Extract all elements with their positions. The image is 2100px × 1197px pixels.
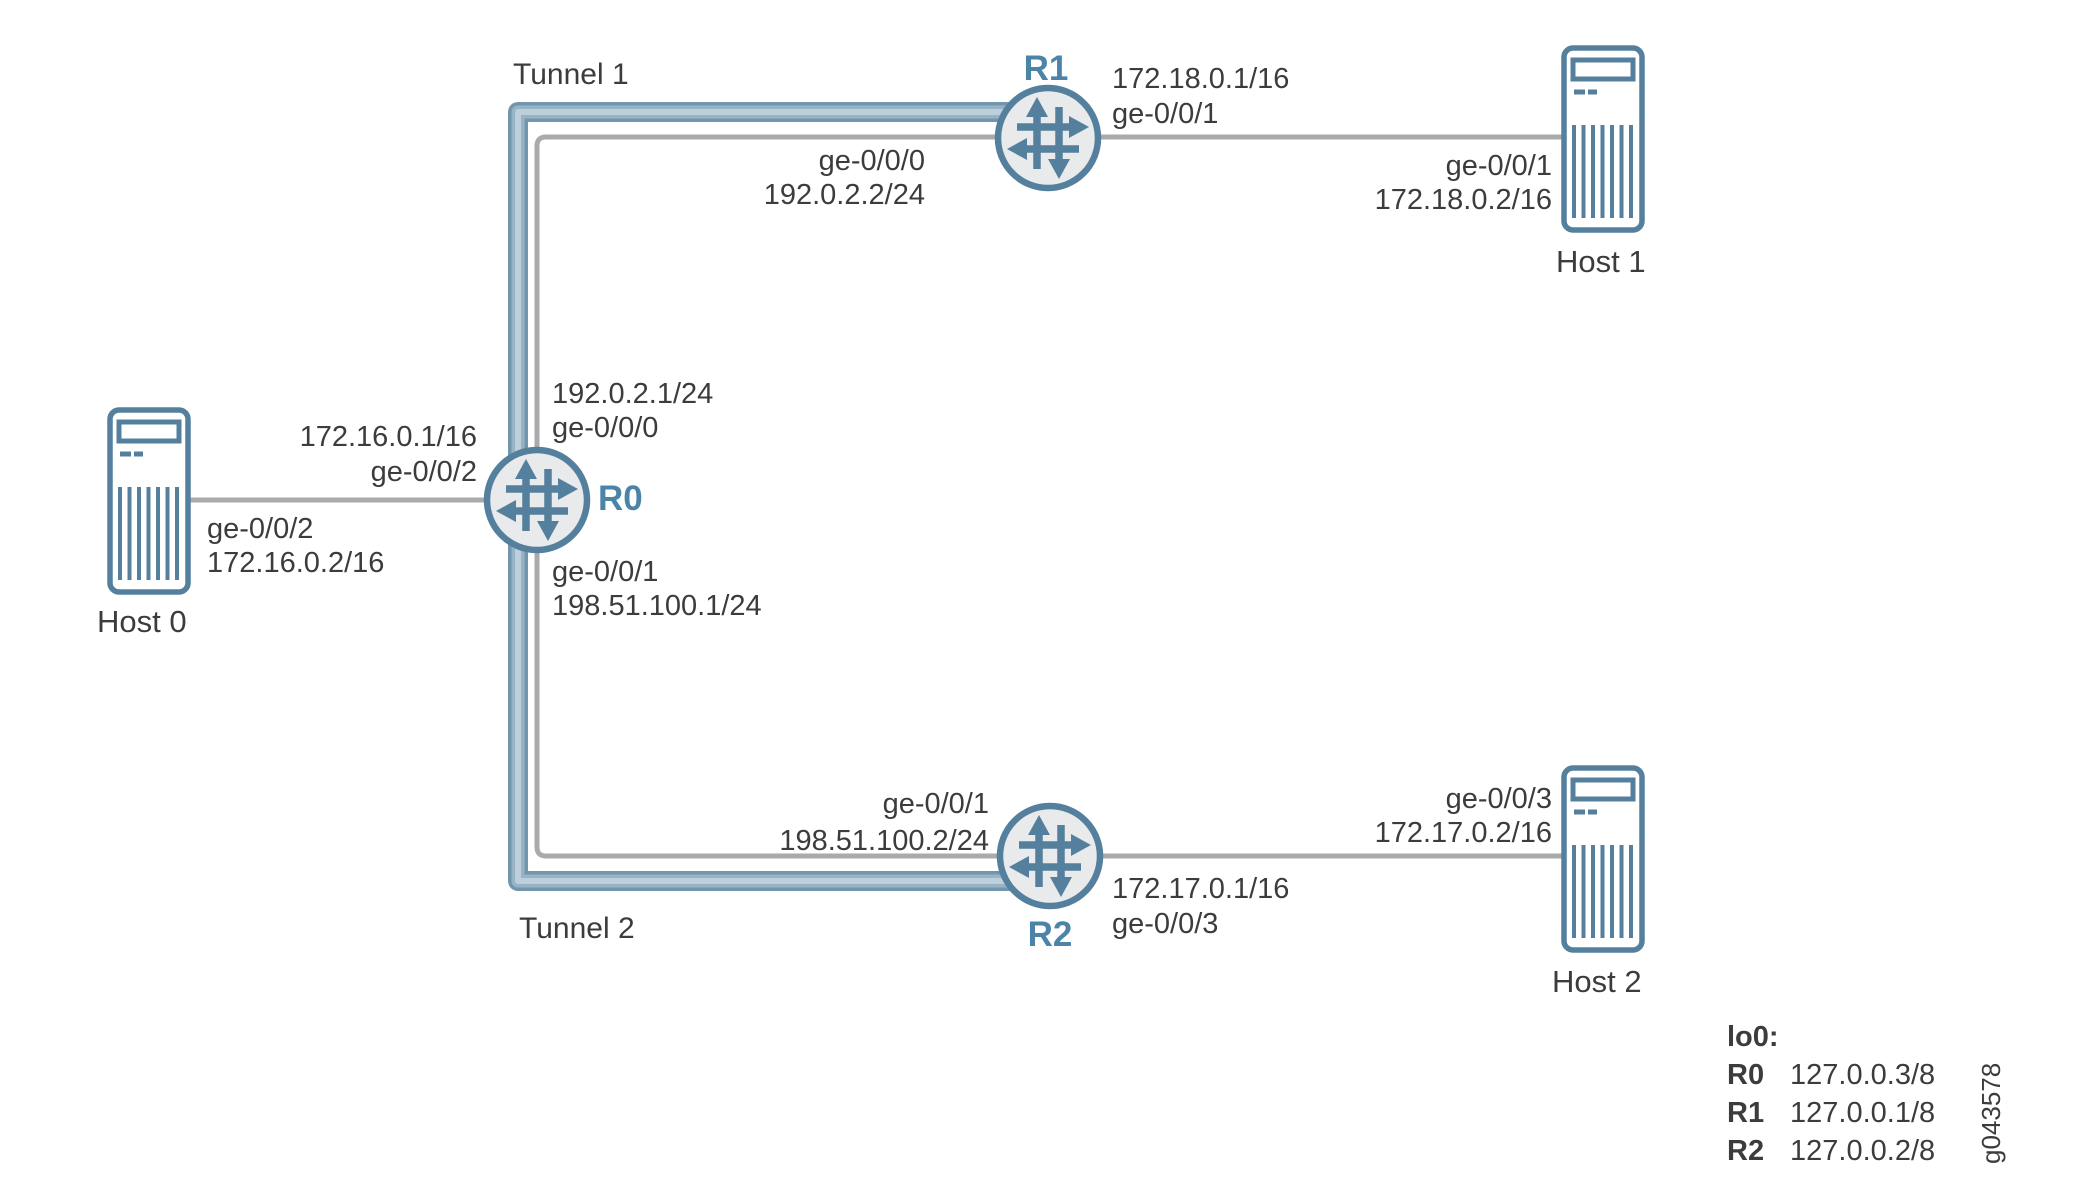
r1-left-ip: 192.0.2.2/24: [764, 179, 925, 211]
host2-if: ge-0/0/3: [1446, 783, 1552, 815]
host0-name: Host 0: [97, 604, 187, 639]
r0-left-ip: 172.16.0.1/16: [300, 421, 477, 453]
r0-top-ip: 192.0.2.1/24: [552, 378, 713, 410]
router-icon-r0: [487, 450, 587, 550]
host-icon-host2: [1564, 768, 1642, 950]
loopback-legend: lo0: R0 127.0.0.3/8 R1 127.0.0.1/8 R2 12…: [1727, 1021, 1935, 1167]
legend-row-value: 127.0.0.3/8: [1790, 1059, 1935, 1091]
legend-row-label: R2: [1727, 1135, 1764, 1167]
tunnel-2-label: Tunnel 2: [519, 912, 635, 945]
r1-right-ip: 172.18.0.1/16: [1112, 63, 1289, 95]
r2-right-ip: 172.17.0.1/16: [1112, 873, 1289, 905]
link-r0-r2-host2: [537, 500, 1566, 856]
legend-title: lo0:: [1727, 1021, 1779, 1053]
host1-if: ge-0/0/1: [1446, 150, 1552, 182]
r2-right-if: ge-0/0/3: [1112, 908, 1218, 940]
host2-name: Host 2: [1552, 964, 1642, 999]
host0-ip: 172.16.0.2/16: [207, 547, 384, 579]
legend-row-value: 127.0.0.1/8: [1790, 1097, 1935, 1129]
host-icon-host1: [1564, 48, 1642, 230]
router-icon-r1: [998, 88, 1098, 188]
figure-id: g043578: [1976, 1063, 2006, 1164]
r0-bottom-ip: 198.51.100.1/24: [552, 590, 762, 622]
r0-bottom-if: ge-0/0/1: [552, 556, 658, 588]
r1-right-if: ge-0/0/1: [1112, 98, 1218, 130]
topology-canvas: Tunnel 1 Tunnel 2 R1 172.18.0.1/16 ge-0/…: [0, 0, 2100, 1197]
r1-left-if: ge-0/0/0: [819, 145, 925, 177]
router-icon-r2: [1000, 806, 1100, 906]
host0-if: ge-0/0/2: [207, 513, 313, 545]
network-topology-diagram: Tunnel 1 Tunnel 2 R1 172.18.0.1/16 ge-0/…: [0, 0, 2100, 1197]
legend-row-value: 127.0.0.2/8: [1790, 1135, 1935, 1167]
r2-left-if: ge-0/0/1: [883, 788, 989, 820]
host2-ip: 172.17.0.2/16: [1375, 817, 1552, 849]
router-r0-name: R0: [598, 479, 643, 518]
host1-name: Host 1: [1556, 244, 1646, 279]
router-r1-name: R1: [1024, 49, 1069, 88]
legend-row-label: R0: [1727, 1059, 1764, 1091]
r0-top-if: ge-0/0/0: [552, 412, 658, 444]
host1-ip: 172.18.0.2/16: [1375, 184, 1552, 216]
legend-row-label: R1: [1727, 1097, 1764, 1129]
r2-left-ip: 198.51.100.2/24: [779, 825, 989, 857]
tunnel-1-label: Tunnel 1: [513, 58, 629, 91]
router-r2-name: R2: [1028, 915, 1073, 954]
host-icon-host0: [110, 410, 188, 592]
r0-left-if: ge-0/0/2: [371, 456, 477, 488]
